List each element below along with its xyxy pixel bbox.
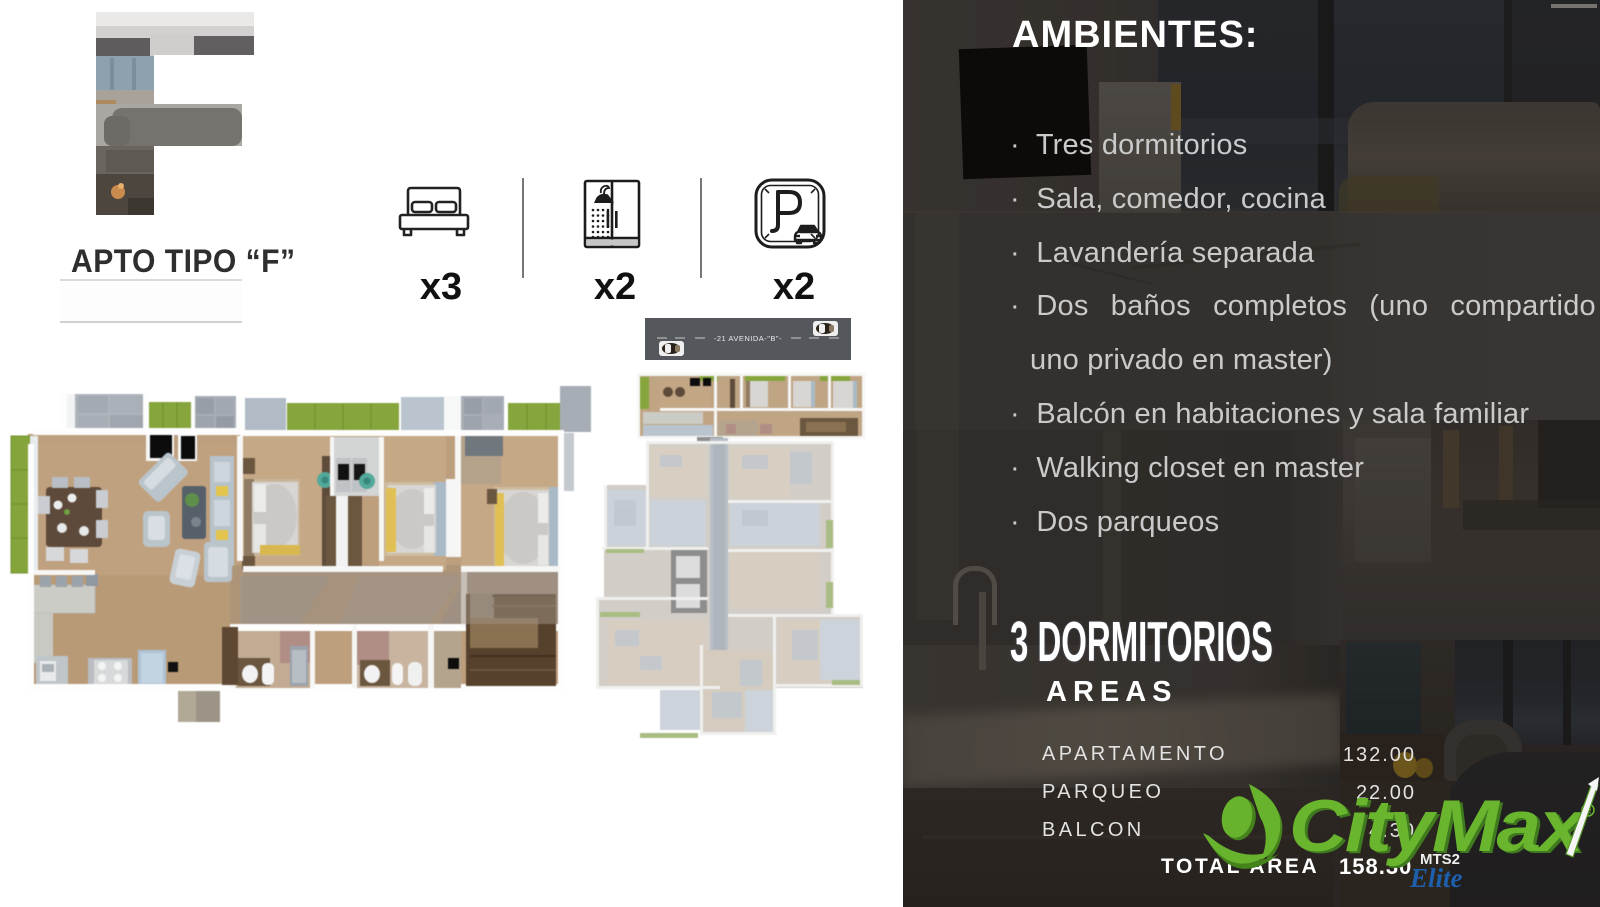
svg-text:CityMax: CityMax <box>1289 786 1587 867</box>
svg-text:Elite: Elite <box>1409 863 1463 893</box>
svg-text:-21 AVENIDA-"B"-: -21 AVENIDA-"B"- <box>714 334 782 343</box>
